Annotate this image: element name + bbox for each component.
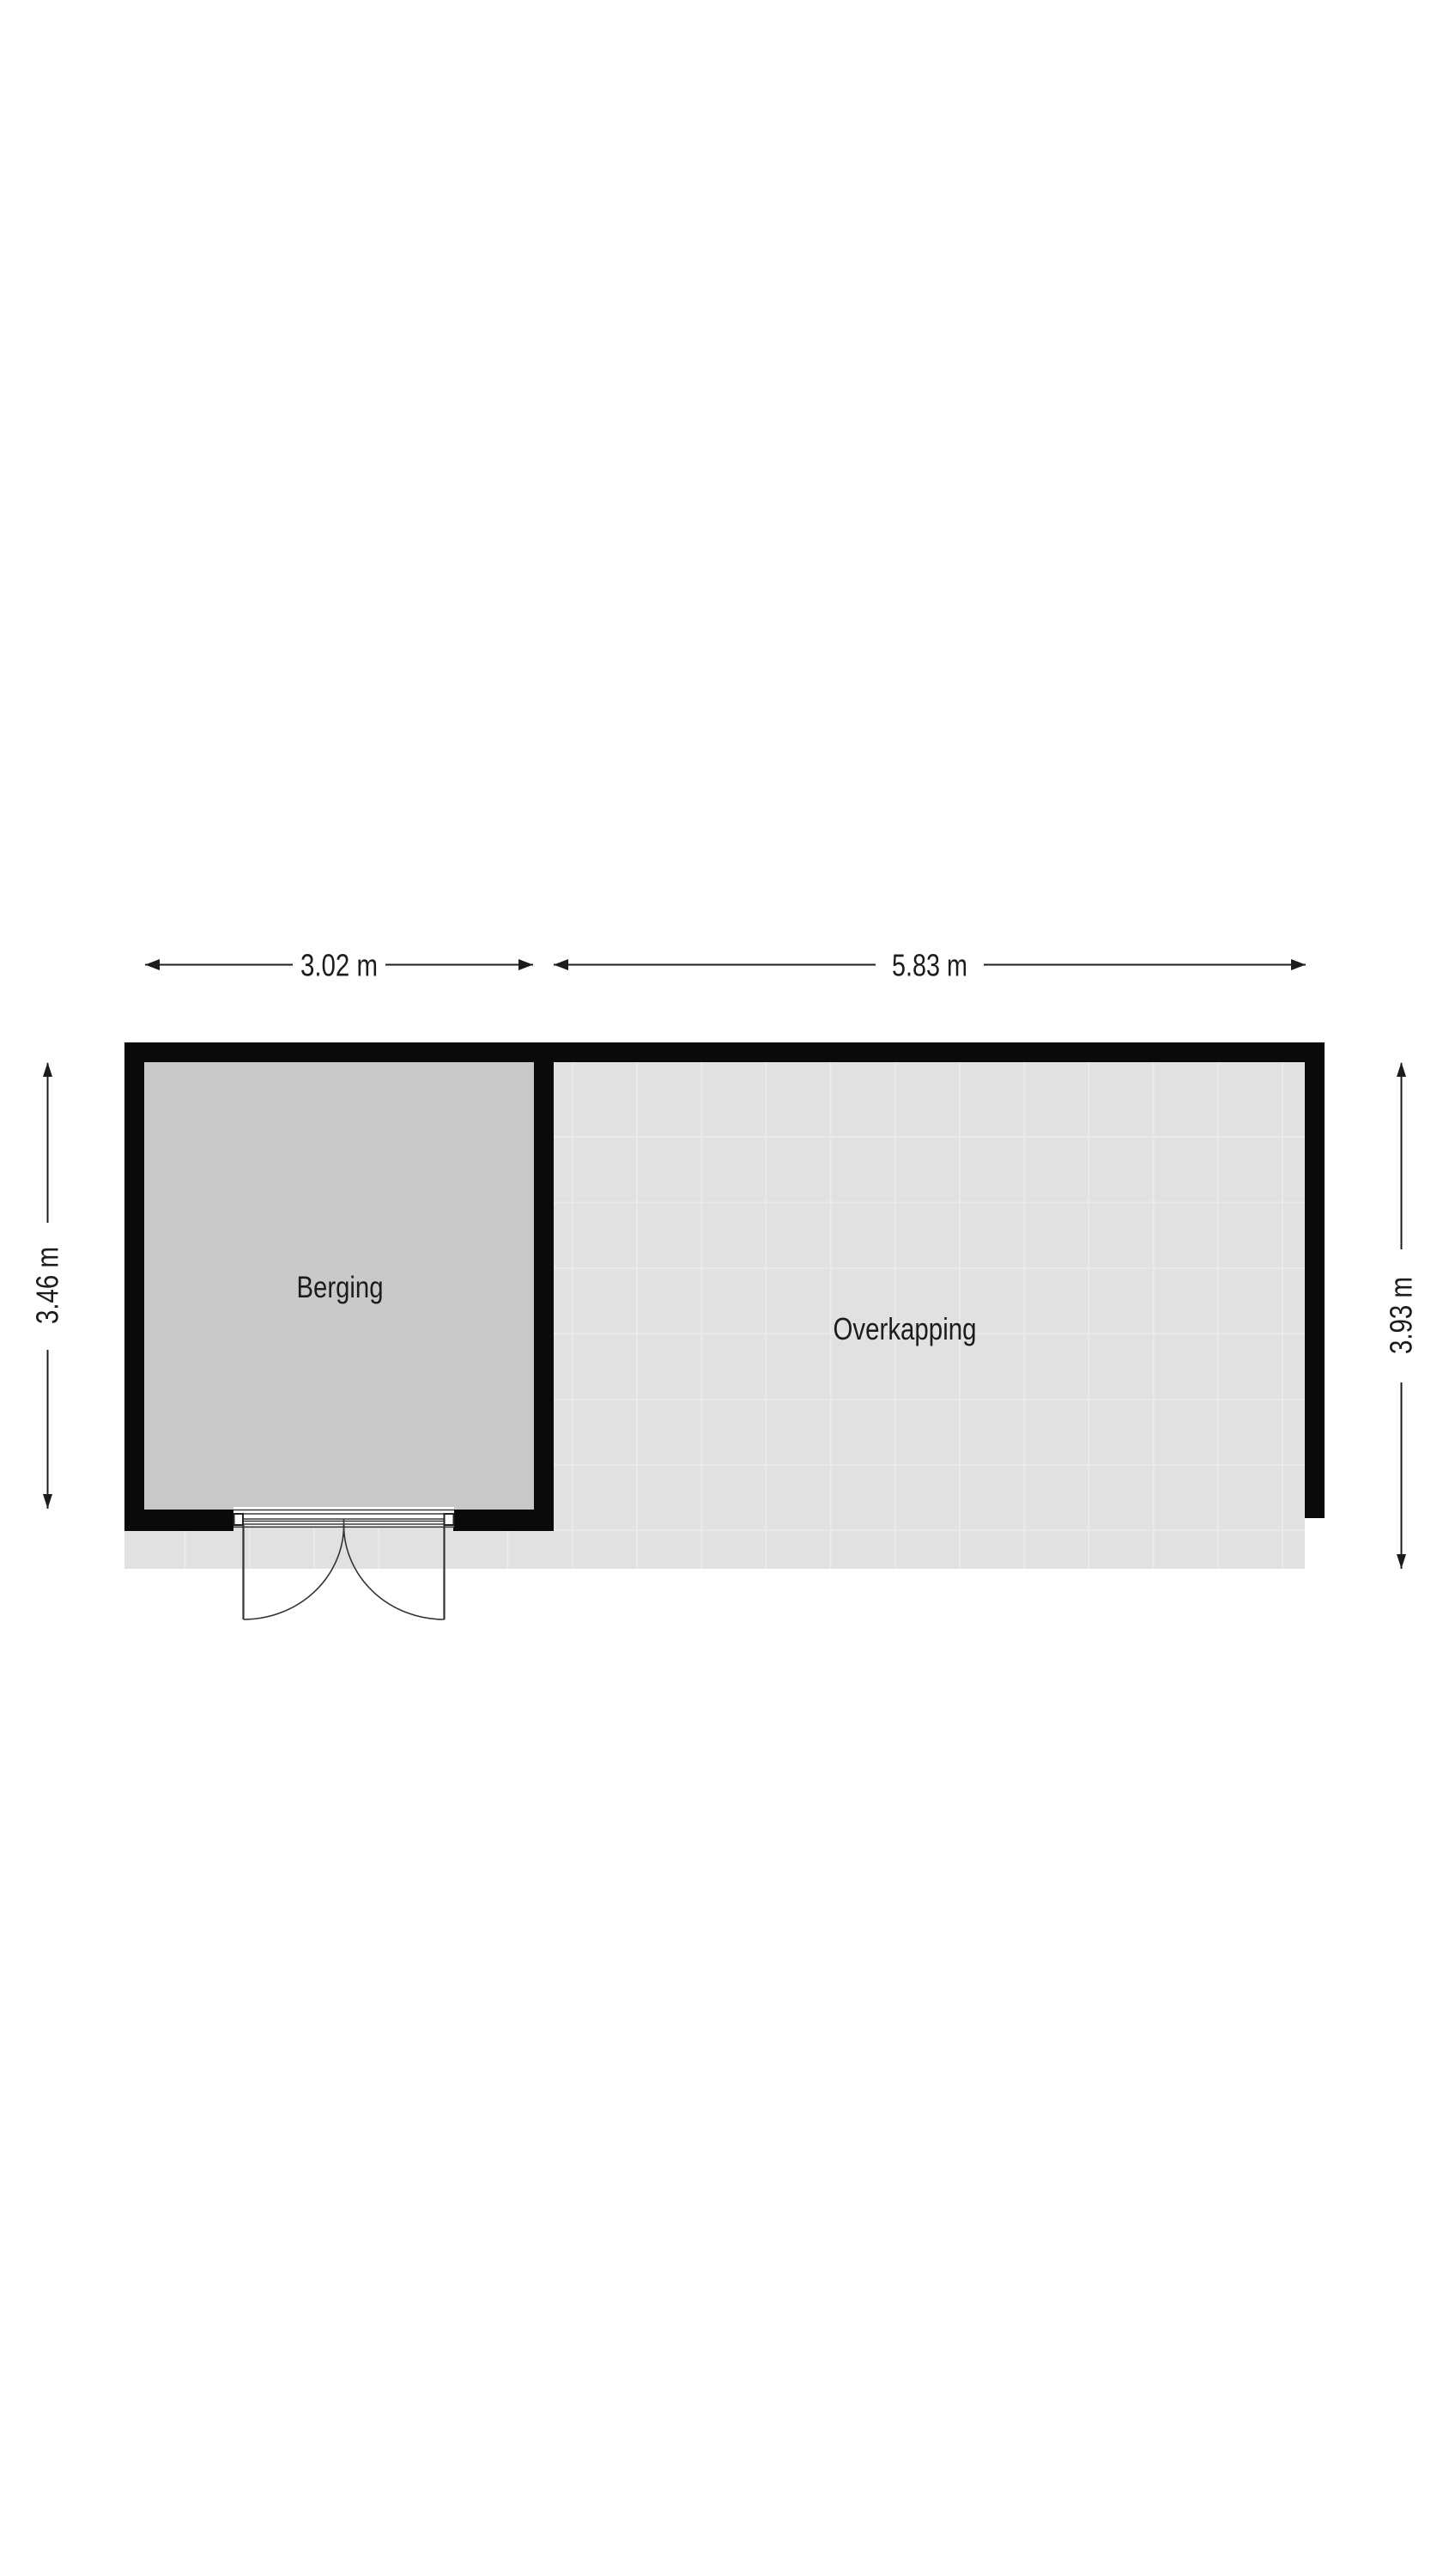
svg-text:Berging: Berging	[297, 1271, 384, 1304]
svg-text:3.02 m: 3.02 m	[300, 948, 378, 983]
svg-text:3.93 m: 3.93 m	[1384, 1277, 1419, 1354]
svg-text:Overkapping: Overkapping	[834, 1311, 977, 1346]
svg-text:5.83 m: 5.83 m	[892, 948, 967, 983]
svg-text:3.46 m: 3.46 m	[30, 1247, 65, 1324]
